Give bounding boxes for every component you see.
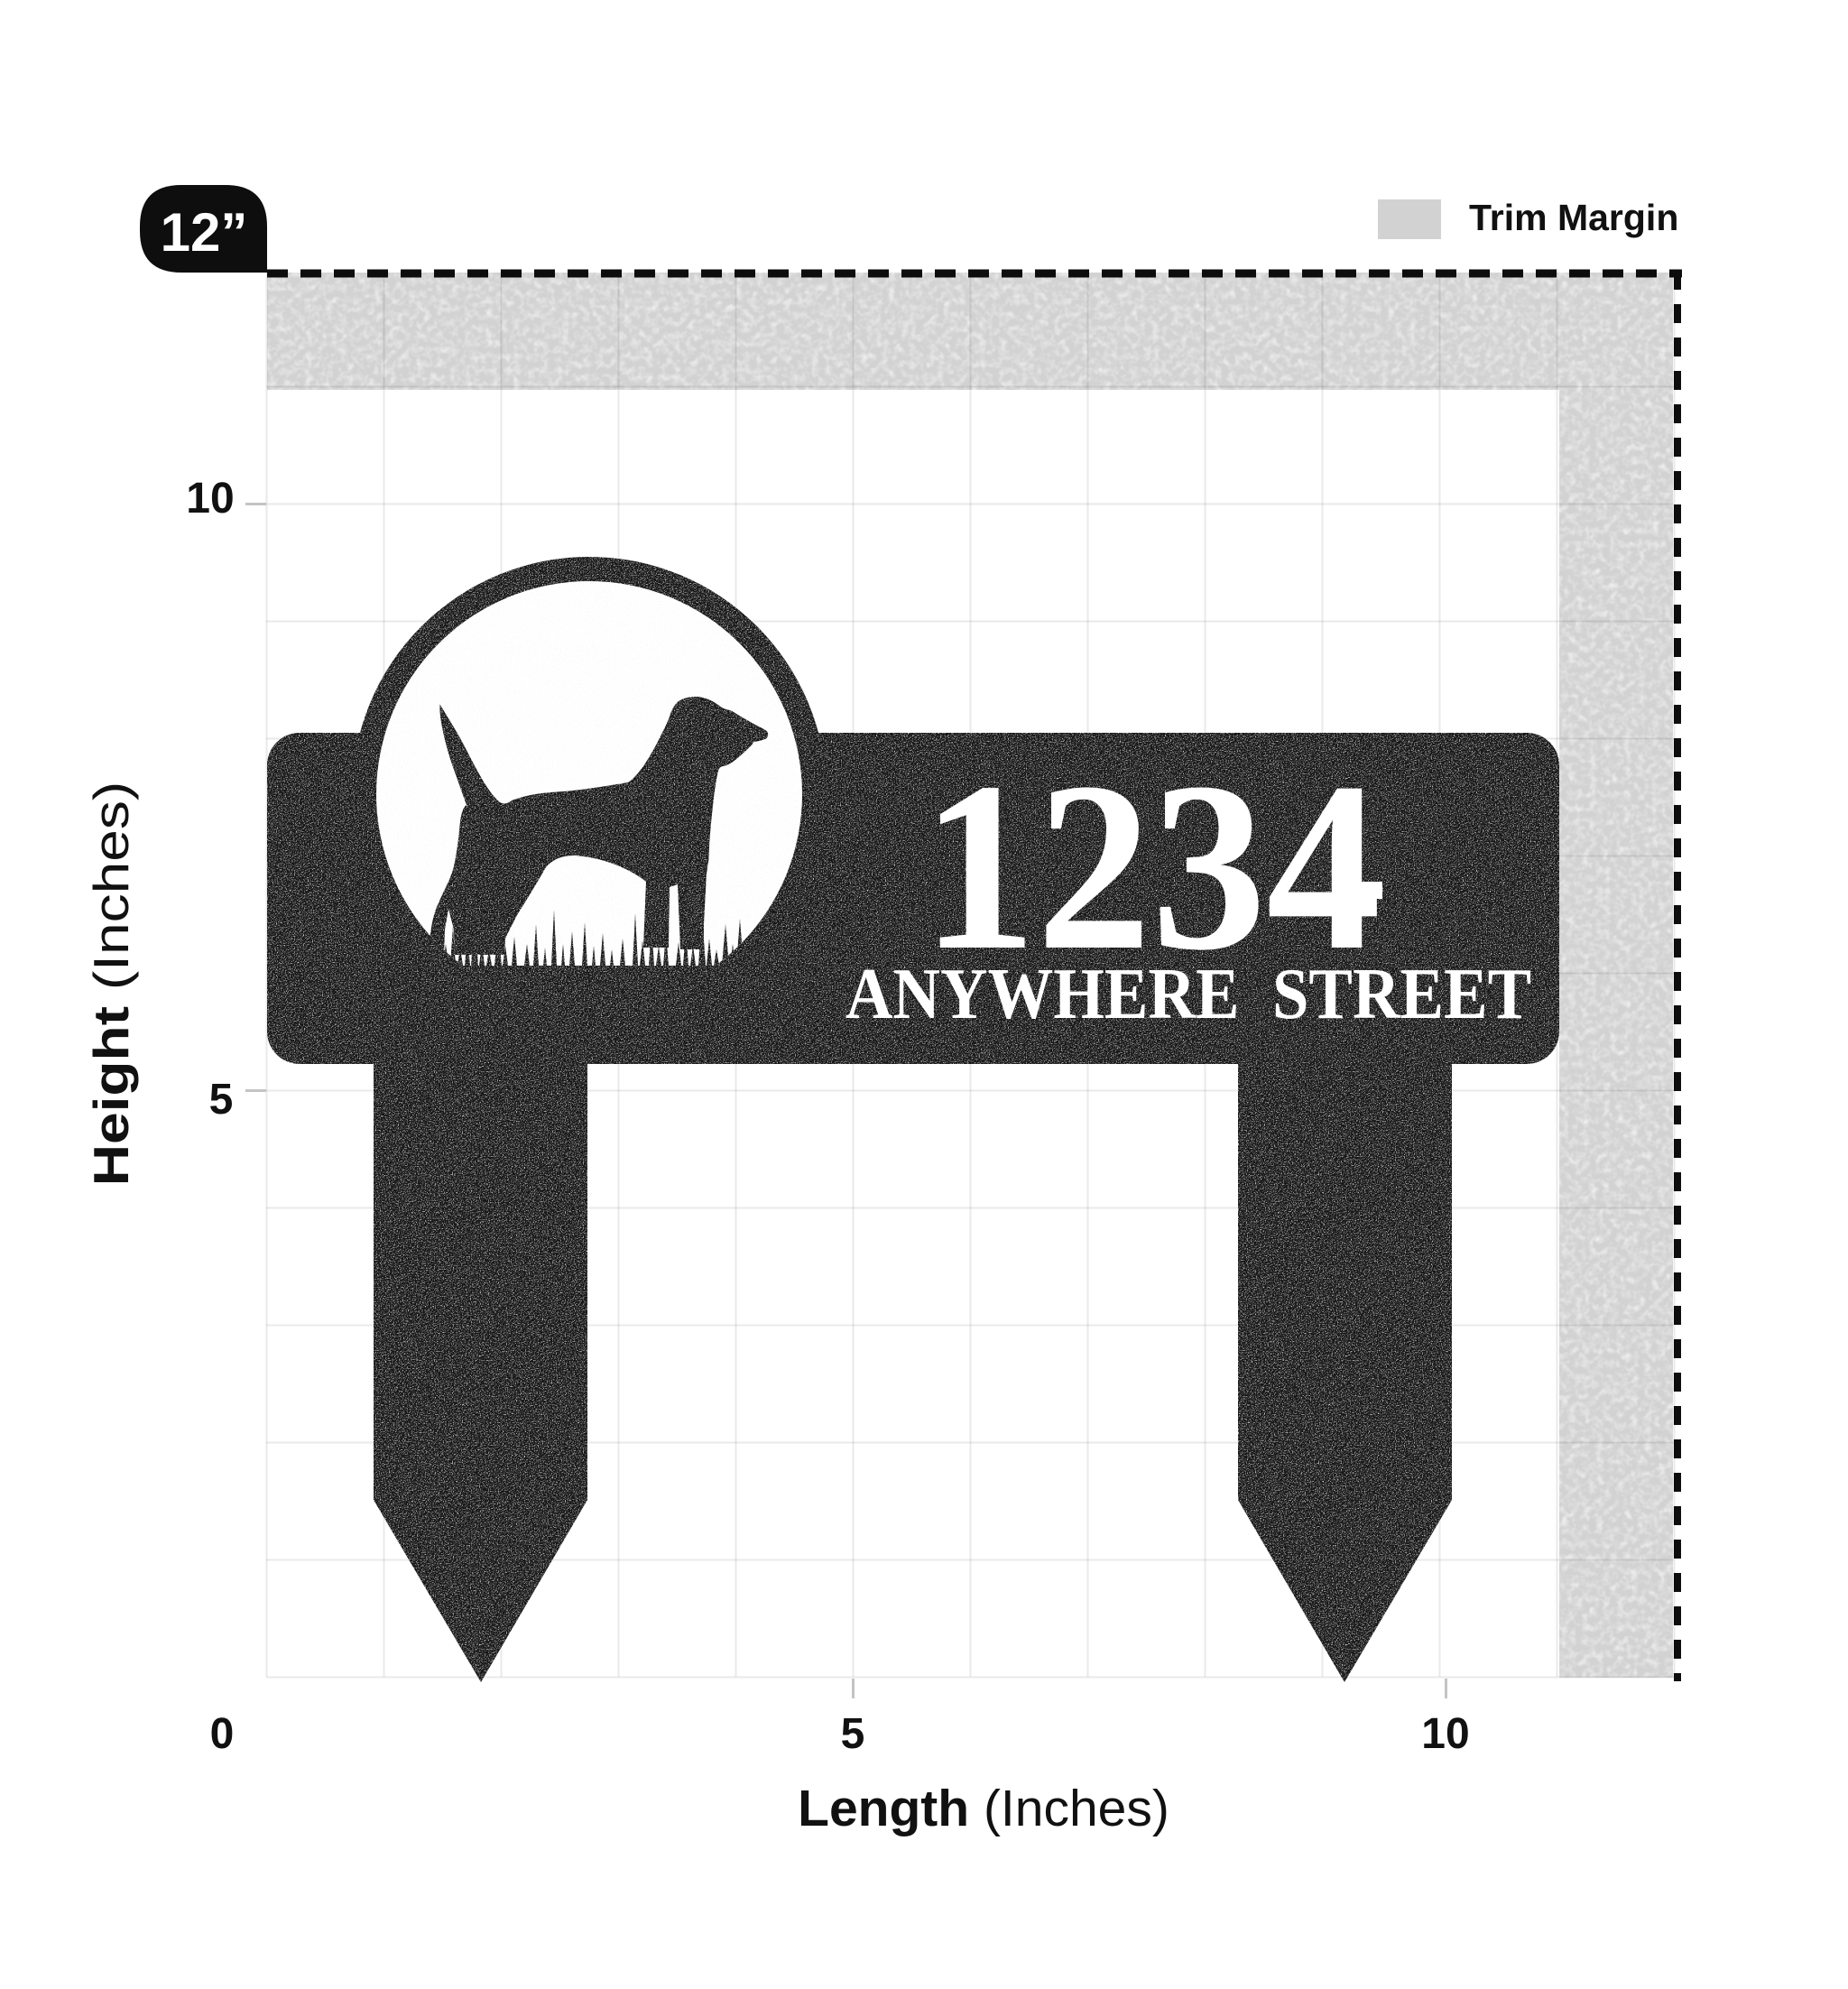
svg-text:Length (Inches): Length (Inches)	[798, 1780, 1169, 1837]
svg-text:ANYWHERE STREET: ANYWHERE STREET	[845, 954, 1531, 1034]
svg-text:5: 5	[841, 1710, 865, 1758]
svg-text:5: 5	[209, 1076, 234, 1124]
svg-text:0: 0	[210, 1710, 235, 1758]
svg-text:10: 10	[186, 475, 234, 523]
svg-text:Trim Margin: Trim Margin	[1469, 197, 1678, 238]
svg-text:10: 10	[1421, 1710, 1469, 1758]
svg-text:Height (Inches): Height (Inches)	[83, 782, 139, 1187]
svg-text:12”: 12”	[161, 202, 248, 263]
